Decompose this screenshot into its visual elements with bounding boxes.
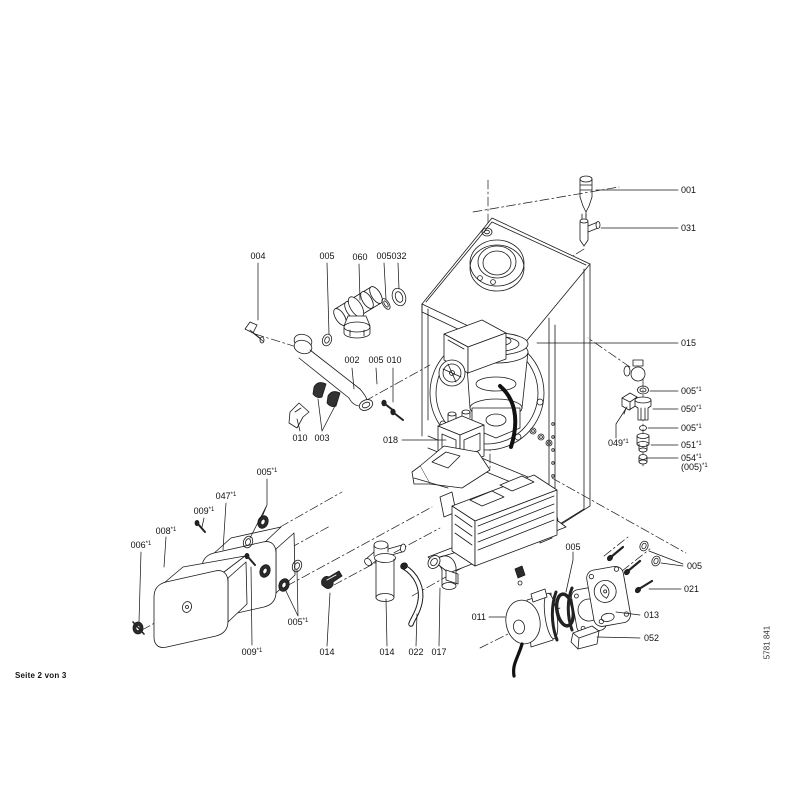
part-label-005-top2: 005	[376, 251, 391, 261]
part-label-021: 021	[684, 584, 699, 594]
part-label-015: 015	[681, 338, 696, 348]
part-label-010-mid: 010	[386, 355, 401, 365]
document-number: 5781 841	[763, 621, 772, 665]
part-label-005-r1: 005*1	[681, 386, 702, 396]
part-label-005-pump: 005	[565, 542, 580, 552]
part-label-018: 018	[383, 435, 398, 445]
exploded-parts-drawing: 001031015005*1050*1005*1051*1054*1(005)*…	[0, 0, 800, 800]
part-label-009-top: 009*1	[194, 506, 215, 516]
part-label-003: 003	[314, 433, 329, 443]
left-pipe-assembly	[245, 285, 408, 428]
part-label-002: 002	[344, 355, 359, 365]
part-label-013: 013	[644, 610, 659, 620]
part-label-014-trap: 014	[379, 647, 394, 657]
part-label-005-ll-top: 005*1	[257, 467, 278, 477]
part-label-052: 052	[644, 633, 659, 643]
part-label-005-mid: 005	[368, 355, 383, 365]
part-label-014-clip: 014	[319, 647, 334, 657]
page-indicator: Seite 2 von 3	[15, 671, 67, 680]
part-label-006: 006*1	[131, 540, 152, 550]
part-label-010-left: 010	[292, 433, 307, 443]
part-label-031: 031	[681, 223, 696, 233]
part-label-051: 051*1	[681, 440, 702, 450]
air-intake-funnel	[412, 446, 490, 488]
part-label-050: 050*1	[681, 404, 702, 414]
part-label-004: 004	[250, 251, 265, 261]
part-label-008: 008*1	[156, 526, 177, 536]
part-label-005-screws: 005	[687, 561, 702, 571]
drain-valve-column	[622, 360, 651, 464]
diagram-page: 001031015005*1050*1005*1051*1054*1(005)*…	[0, 0, 800, 800]
pump-connector-052	[571, 626, 599, 649]
condensate-trap-014	[363, 541, 406, 602]
part-label-005-top1: 005	[319, 251, 334, 261]
part-label-032: 032	[391, 251, 406, 261]
part-label-060: 060	[352, 252, 367, 262]
part-label-005-ll-right: 005*1	[288, 617, 309, 627]
part-label-011: 011	[472, 612, 486, 622]
part-label-009-bottom: 009*1	[242, 647, 263, 657]
part-label-005-paren: (005)*1	[681, 462, 708, 472]
part-label-005-r2: 005*1	[681, 423, 702, 433]
pump-motor-011	[502, 589, 560, 676]
fitting-031	[580, 214, 600, 246]
part-label-001: 001	[681, 185, 696, 195]
part-label-017: 017	[431, 647, 446, 657]
part-label-047: 047*1	[216, 491, 237, 501]
vent-valve-001	[580, 176, 592, 212]
part-label-022: 022	[408, 647, 423, 657]
part-label-049: 049*1	[608, 438, 629, 448]
heat-exchanger-block	[428, 475, 566, 585]
hose-clip-014	[322, 571, 342, 589]
